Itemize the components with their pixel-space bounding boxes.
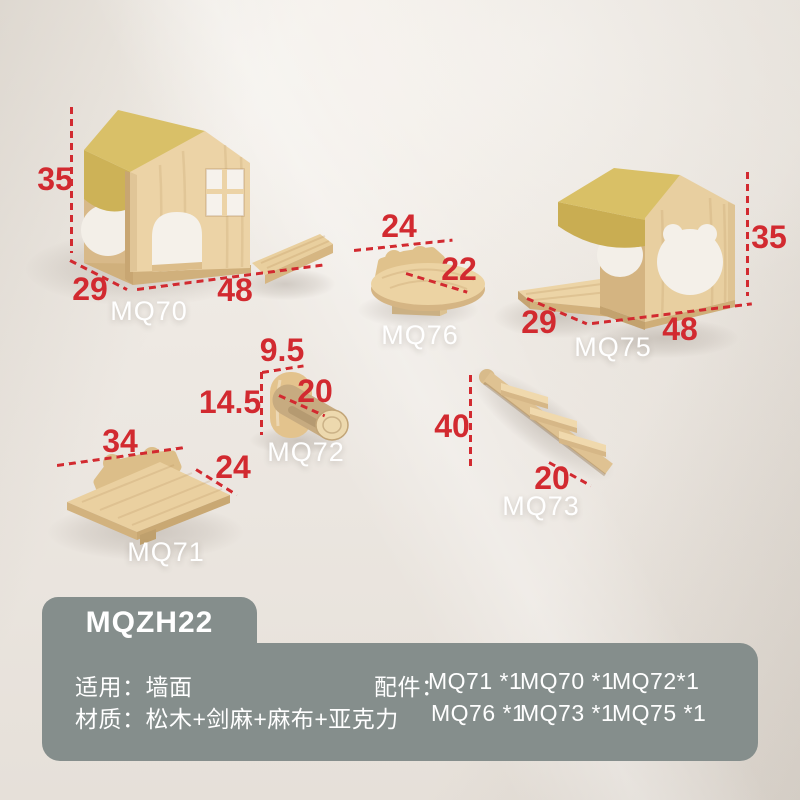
model-code: MQZH22 (86, 606, 214, 640)
mq73-code-label: MQ73 (486, 491, 596, 522)
mq72-plate-height-dimension: 14.5 (192, 386, 268, 418)
mq70-height-dimension: 35 (25, 163, 85, 195)
material-label: 材质： (75, 706, 146, 732)
mq76-depth-dimension: 22 (429, 253, 489, 285)
usage-label: 适用： (75, 674, 146, 700)
product-showcase: 35 29 48 MQ70 24 22 MQ76 (0, 0, 800, 800)
mq72-plate-width-dimension: 9.5 (252, 334, 312, 366)
mq76-width-dimension: 24 (369, 210, 429, 242)
accessory-item: MQ70 *1 (520, 668, 614, 695)
model-tab: MQZH22 (42, 597, 257, 649)
mq71-code-label: MQ71 (111, 537, 221, 568)
mq75-height-dimension-line (746, 172, 749, 296)
accessory-item: MQ75 *1 (612, 700, 706, 727)
mq76-code-label: MQ76 (365, 320, 475, 351)
accessory-item: MQ73 *1 (520, 700, 614, 727)
material-value: 松木+剑麻+麻布+亚克力 (146, 706, 399, 732)
mq75-code-label: MQ75 (558, 332, 668, 363)
mq72-plate-height-dimension-line (260, 372, 263, 435)
accessory-item: MQ76 *1 (431, 700, 525, 727)
mq70-height-dimension-line (70, 107, 73, 253)
accessory-item: MQ71 *1 (428, 668, 522, 695)
usage-row: 适用：墙面 (75, 668, 193, 702)
material-row: 材质：松木+剑麻+麻布+亚克力 (75, 700, 399, 734)
mq73-height-dimension: 40 (422, 410, 482, 442)
mq70-code-label: MQ70 (94, 296, 204, 327)
accessory-item: MQ72*1 (612, 668, 699, 695)
usage-value: 墙面 (146, 674, 193, 700)
mq73-height-dimension-line (469, 375, 472, 468)
mq72-code-label: MQ72 (251, 437, 361, 468)
